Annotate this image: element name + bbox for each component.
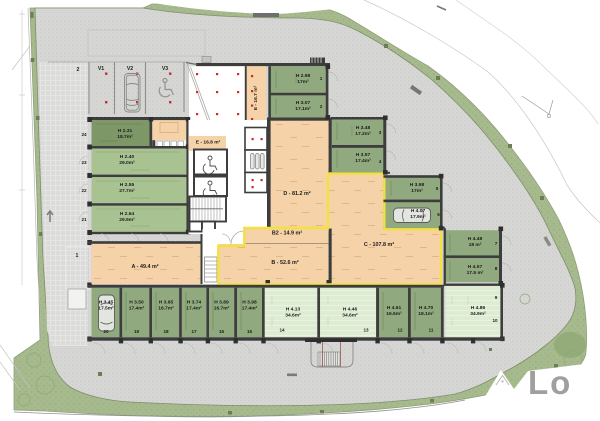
svg-text:17: 17 — [191, 329, 197, 334]
svg-text:H 4.57: H 4.57 — [468, 264, 483, 270]
svg-text:7: 7 — [495, 241, 498, 246]
svg-text:D - 81.2 m²: D - 81.2 m² — [283, 191, 310, 197]
svg-text:29.9m²: 29.9m² — [119, 217, 135, 223]
svg-text:H 2.31: H 2.31 — [118, 128, 133, 134]
svg-text:2: 2 — [77, 67, 80, 73]
svg-text:34.9m²: 34.9m² — [470, 311, 486, 317]
svg-text:11: 11 — [429, 328, 434, 333]
svg-text:H 4.48: H 4.48 — [468, 236, 483, 242]
svg-text:17.4m²: 17.4m² — [355, 158, 371, 164]
svg-text:5: 5 — [436, 186, 439, 191]
svg-text:H 3.65: H 3.65 — [159, 300, 174, 306]
svg-text:16.7m²: 16.7m² — [158, 306, 174, 312]
svg-text:H 3.57: H 3.57 — [356, 152, 371, 158]
svg-text:18.7m²: 18.7m² — [117, 134, 133, 140]
svg-text:19: 19 — [134, 329, 140, 334]
svg-text:18: 18 — [163, 329, 169, 334]
svg-text:H 3.98: H 3.98 — [242, 300, 257, 306]
svg-text:Lo: Lo — [528, 364, 572, 401]
svg-text:13: 13 — [363, 328, 369, 333]
svg-text:29.0m²: 29.0m² — [119, 160, 135, 166]
svg-text:20: 20 — [103, 329, 109, 334]
svg-text:H 4.13: H 4.13 — [286, 307, 301, 313]
svg-text:V3: V3 — [162, 66, 168, 72]
svg-text:E - 16.8 m²: E - 16.8 m² — [196, 140, 221, 146]
svg-text:H 2.55: H 2.55 — [120, 182, 135, 188]
svg-text:24: 24 — [81, 132, 87, 137]
svg-text:17.4m²: 17.4m² — [242, 306, 258, 312]
svg-text:16: 16 — [219, 329, 225, 334]
svg-text:A - 49.4 m²: A - 49.4 m² — [131, 264, 158, 270]
svg-text:6: 6 — [437, 212, 440, 217]
svg-text:16.7m²: 16.7m² — [214, 306, 230, 312]
svg-text:H 3.45: H 3.45 — [99, 300, 114, 306]
svg-text:C - 107.8 m²: C - 107.8 m² — [364, 242, 394, 248]
svg-text:H 3.98: H 3.98 — [410, 182, 425, 188]
svg-text:2: 2 — [320, 104, 323, 109]
svg-text:22: 22 — [81, 188, 87, 193]
svg-text:V2: V2 — [127, 66, 133, 72]
svg-text:21: 21 — [81, 217, 87, 222]
svg-text:9: 9 — [495, 295, 498, 300]
svg-text:12: 12 — [397, 328, 403, 333]
svg-text:H 2.40: H 2.40 — [120, 154, 135, 160]
svg-text:H 3.74: H 3.74 — [187, 300, 202, 306]
svg-text:H 2.64: H 2.64 — [120, 211, 135, 217]
svg-text:H 4.61: H 4.61 — [387, 305, 402, 311]
svg-text:17m²: 17m² — [297, 79, 309, 85]
svg-text:H 3.50: H 3.50 — [129, 300, 144, 306]
svg-text:1: 1 — [76, 253, 79, 259]
svg-text:17m²: 17m² — [411, 188, 423, 194]
svg-text:H 3.48: H 3.48 — [356, 125, 371, 131]
svg-text:H 3.89: H 3.89 — [214, 300, 229, 306]
svg-text:1: 1 — [320, 76, 323, 81]
svg-text:17.9m²: 17.9m² — [410, 214, 426, 220]
svg-text:H 2.98: H 2.98 — [296, 73, 311, 79]
svg-text:H 4.70: H 4.70 — [419, 305, 434, 311]
svg-text:17.5 m²: 17.5 m² — [467, 270, 484, 276]
svg-text:17.5m²: 17.5m² — [98, 306, 114, 312]
svg-text:34.6m²: 34.6m² — [285, 313, 301, 319]
svg-text:17.4m²: 17.4m² — [186, 306, 202, 312]
svg-text:34.6m²: 34.6m² — [342, 313, 358, 319]
svg-text:27.7m²: 27.7m² — [119, 188, 135, 194]
svg-text:8: 8 — [495, 266, 498, 271]
svg-text:H 4.07: H 4.07 — [411, 208, 426, 214]
svg-text:E - 16.7 m²: E - 16.7 m² — [253, 85, 259, 110]
svg-text:15: 15 — [247, 329, 253, 334]
svg-text:16.6m²: 16.6m² — [386, 311, 402, 317]
svg-text:H 3.07: H 3.07 — [296, 100, 311, 106]
svg-text:B2 - 14.9 m²: B2 - 14.9 m² — [272, 231, 302, 237]
svg-text:18.1m²: 18.1m² — [418, 311, 434, 317]
svg-text:V1: V1 — [98, 66, 104, 72]
svg-text:14: 14 — [279, 328, 285, 333]
svg-text:H 4.46: H 4.46 — [343, 307, 358, 313]
svg-text:23: 23 — [81, 160, 87, 165]
svg-text:4: 4 — [379, 159, 382, 164]
svg-text:17.1m²: 17.1m² — [295, 106, 311, 112]
svg-text:17.4m²: 17.4m² — [129, 306, 145, 312]
svg-text:18 m²: 18 m² — [469, 242, 482, 248]
svg-text:10: 10 — [492, 318, 498, 323]
svg-text:17.2m²: 17.2m² — [355, 131, 371, 137]
svg-text:3: 3 — [379, 130, 382, 135]
svg-text:H 4.86: H 4.86 — [471, 305, 486, 311]
svg-text:B - 52.6 m²: B - 52.6 m² — [271, 260, 298, 266]
